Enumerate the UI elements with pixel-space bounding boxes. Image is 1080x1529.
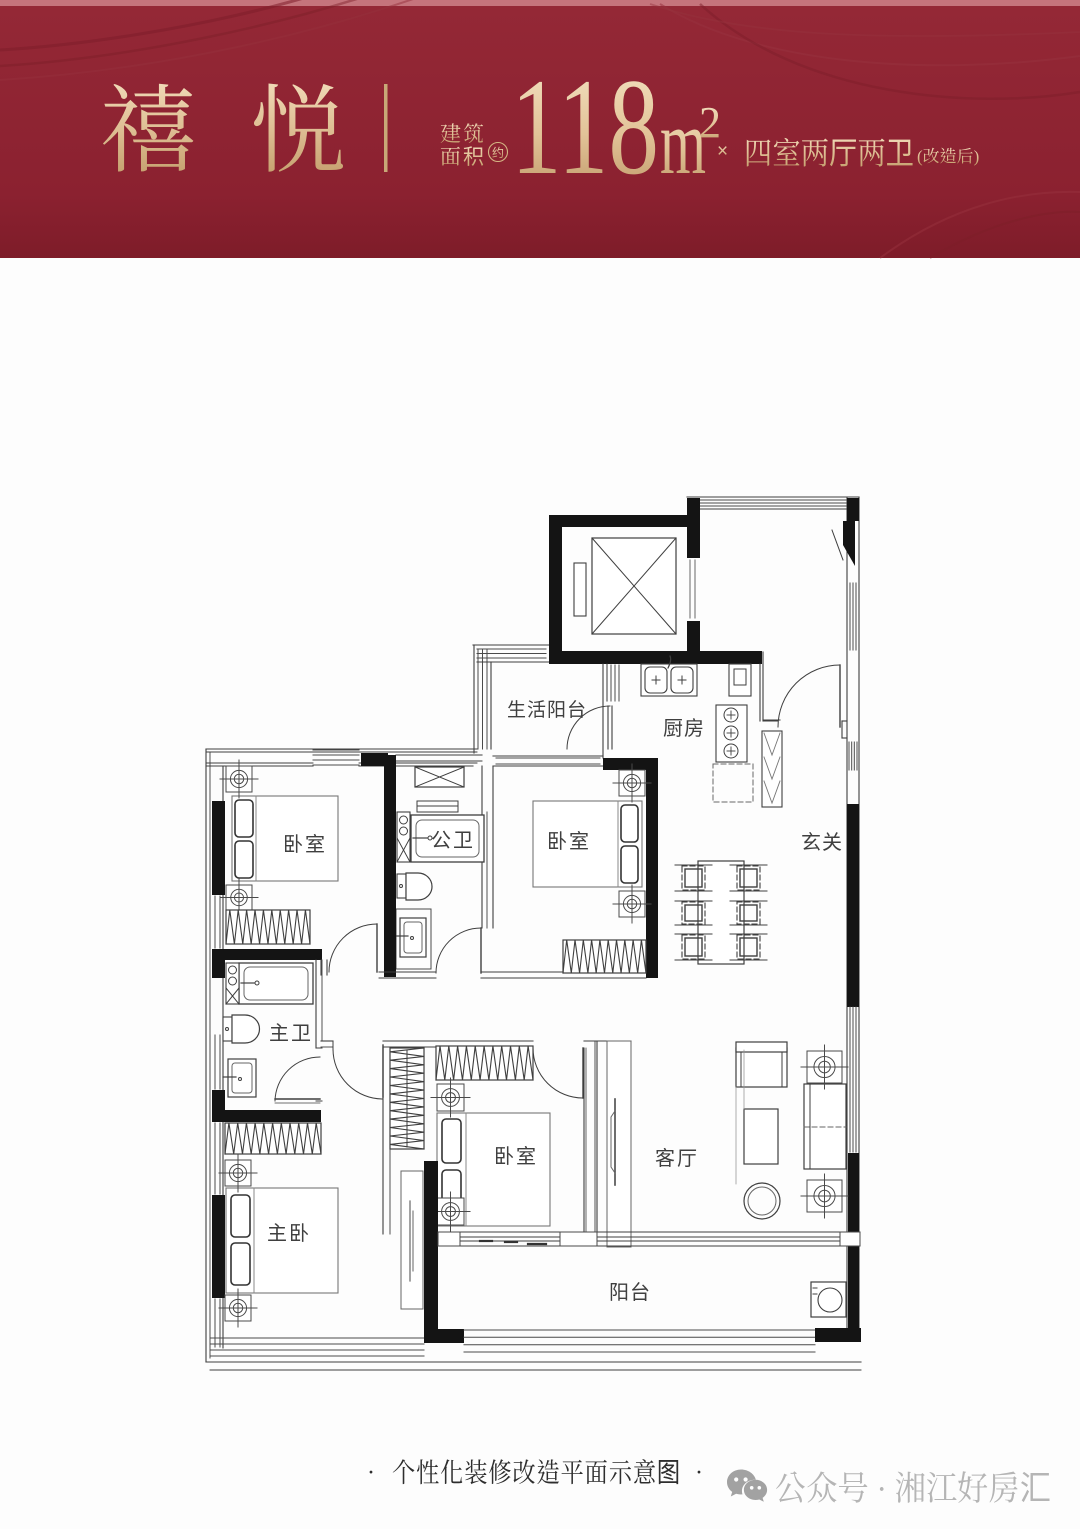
svg-text:建筑: 建筑 (440, 122, 486, 146)
svg-text:玄关: 玄关 (801, 831, 843, 854)
svg-text:×: × (717, 141, 728, 162)
svg-text:悦: 悦 (250, 78, 346, 185)
svg-text:(改造后): (改造后) (917, 147, 979, 166)
svg-text:卧室: 卧室 (494, 1145, 538, 1168)
svg-text:厨房: 厨房 (663, 717, 705, 740)
svg-text:生活阳台: 生活阳台 (507, 699, 587, 721)
svg-text:阳台: 阳台 (609, 1281, 651, 1304)
svg-text:·: · (367, 1460, 375, 1486)
svg-text:公众号 · 湘江好房汇: 公众号 · 湘江好房汇 (775, 1471, 1051, 1508)
svg-text:·: · (695, 1460, 703, 1486)
svg-text:主卫: 主卫 (269, 1022, 313, 1045)
svg-text:卧室: 卧室 (283, 833, 327, 856)
svg-text:主卧: 主卧 (267, 1222, 311, 1245)
svg-text:2: 2 (699, 98, 721, 147)
svg-text:公卫: 公卫 (431, 830, 475, 852)
svg-text:四室两厅两卫: 四室两厅两卫 (744, 136, 914, 171)
svg-text:118: 118 (511, 50, 659, 203)
svg-text:个性化装修改造平面示意图: 个性化装修改造平面示意图 (392, 1458, 681, 1488)
svg-text:客厅: 客厅 (655, 1147, 699, 1170)
svg-text:面积: 面积 (440, 145, 486, 169)
svg-text:禧: 禧 (100, 78, 196, 185)
svg-text:卧室: 卧室 (547, 830, 591, 853)
svg-text:约: 约 (492, 145, 504, 160)
